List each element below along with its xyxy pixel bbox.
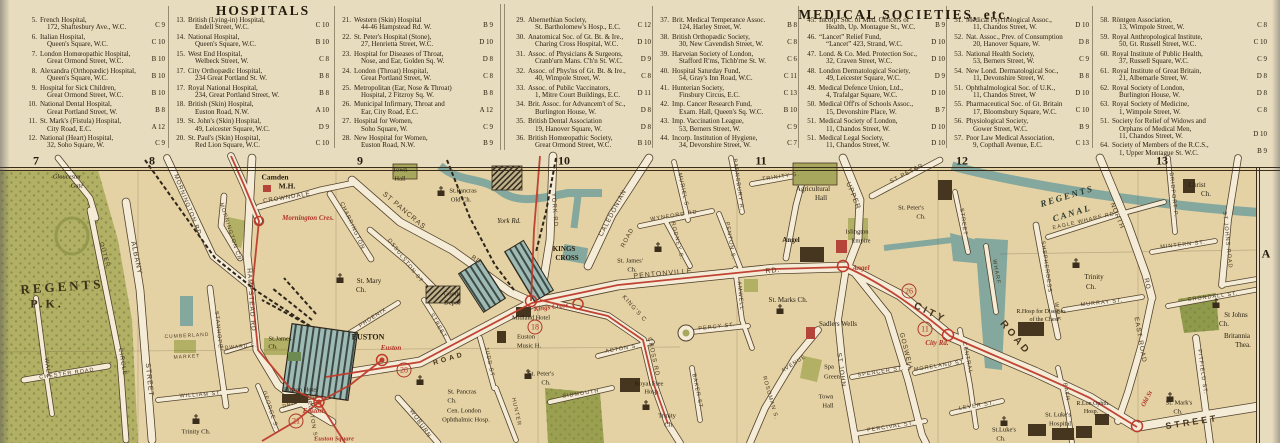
map-label: CROWNDALE <box>263 191 311 204</box>
map-label: STREET <box>144 363 154 397</box>
map-label: Britannia <box>1224 332 1250 340</box>
map-label: RD. <box>470 255 484 268</box>
grid-column-number: 12 <box>956 154 968 169</box>
map-label: Ch. <box>447 398 456 405</box>
map-label: Euston <box>381 344 402 352</box>
map-label: Sadlers Wells <box>819 320 857 328</box>
map-label: STANHOPE <box>213 311 223 349</box>
map-label: St. Peter's <box>528 371 554 378</box>
map-label: Empire <box>851 238 870 245</box>
map-label: Ophthalmic Hosp. <box>442 417 490 424</box>
map-label: Ch. <box>664 422 673 429</box>
map-label: HUNTER <box>510 397 522 427</box>
map-label: WOBURN <box>408 409 432 440</box>
map-label: Ch. <box>627 267 636 274</box>
map-label: Gate <box>71 183 84 190</box>
map-label: Goods <box>444 291 461 298</box>
map-label: Ch. <box>1173 409 1182 416</box>
map-label: PENTON S. <box>724 221 737 260</box>
map-label: P.K. <box>30 297 64 312</box>
map-label: STREET <box>428 313 447 340</box>
map-label: TRINITY S. <box>762 171 800 182</box>
map-label: CHARRINGTON <box>338 201 365 251</box>
map-label: CROSS <box>555 254 578 262</box>
map-label: EAST ROAD <box>1133 317 1148 364</box>
map-label: CALEDONIAN <box>598 188 629 237</box>
map-labels-layer: GloucesterGateREGENTSP.K.WALKCHESTER ROA… <box>0 0 1280 443</box>
map-label: St.Luke's <box>992 427 1016 434</box>
map-label: SIDMOUTH <box>562 388 600 400</box>
map-label: RD. <box>765 267 781 275</box>
map-label: Ch. <box>996 436 1005 443</box>
map-label: ALBANY <box>129 241 143 275</box>
map-label: Ch. <box>1219 320 1229 328</box>
map-label: CENTRAL <box>961 341 974 374</box>
map-label: St Johns <box>1224 311 1248 319</box>
map-label: STREET <box>958 208 968 236</box>
map-label: CRONDALL ST. <box>1187 291 1239 303</box>
map-label: UPPER <box>844 181 861 211</box>
map-ref-marker: 11 <box>918 322 933 337</box>
map-label: St. Mark's <box>1166 400 1192 407</box>
grid-column-number: 13 <box>1156 154 1168 169</box>
map-label: R.Hosp for Diseases <box>1016 309 1065 315</box>
map-label: Royal Free <box>635 381 664 388</box>
map-label: Town <box>393 167 408 174</box>
map-label: AVENUE <box>781 354 808 374</box>
map-label: RO <box>1143 278 1152 291</box>
map-label: PENTONVILLE <box>633 268 693 280</box>
map-label: KING'S C <box>620 294 647 323</box>
map-label: St. James' <box>617 258 643 265</box>
map-label: Ch. <box>916 214 925 221</box>
map-label: PERCIVAL ST. <box>867 420 915 433</box>
map-label: Depot <box>444 300 460 307</box>
map-label: EUSTON <box>352 333 385 342</box>
map-label: PHOENIX <box>358 307 388 329</box>
map-label: ROSOMAN S. <box>761 375 779 420</box>
map-label: Euston <box>303 407 324 415</box>
map-label: Hall <box>822 403 833 410</box>
map-label: Spa <box>824 364 834 371</box>
map-label: R.Lon.Ophth. <box>1076 401 1109 407</box>
map-label: PERCY ST. <box>698 322 736 332</box>
map-label: ROAD <box>997 319 1032 358</box>
map-label: RODNEY S. <box>669 221 684 260</box>
map-label: York Rd. <box>497 217 521 225</box>
map-label: ROAD <box>620 227 635 249</box>
map-label: BARNSBURY R. <box>731 158 744 211</box>
grid-row-letter: A <box>1262 247 1271 262</box>
map-label: St.Pancras <box>449 188 476 195</box>
map-label: CUMBERLAND <box>164 332 209 340</box>
map-ref-marker: 28 <box>397 363 412 378</box>
map-label: M.H. <box>279 182 296 191</box>
map-label: ROAD <box>432 351 465 367</box>
map-label: City Rd. <box>925 339 948 347</box>
map-label: MORELAND ST. <box>914 359 967 373</box>
map-label: ACTON S. <box>605 343 639 355</box>
map-label: YORK RD <box>550 193 558 228</box>
map-label: Town <box>819 394 834 401</box>
map-label: Hospital <box>1049 421 1071 428</box>
map-label: Euston <box>517 334 535 341</box>
map-label: MARKET <box>173 353 200 360</box>
map-label: HAMPSTEAD RD <box>245 268 256 332</box>
map-label: CITY <box>912 300 948 325</box>
vintage-london-medical-map: HOSPITALS MEDICAL SOCIETIES, etc. 5.Fren… <box>0 0 1280 443</box>
map-label: BAKER ST <box>690 373 703 409</box>
map-label: SPENCER ST. <box>857 365 904 378</box>
map-label: Agricultural <box>796 185 830 193</box>
map-label: WILLIAM ST. <box>179 391 222 400</box>
map-label: St. Luke's <box>1045 412 1071 419</box>
map-label: Mornington Cres. <box>282 214 334 222</box>
map-label: CIRCLE <box>117 348 128 377</box>
map-label: ST PANCRAS <box>381 191 427 231</box>
grid-column-number: 10 <box>558 154 570 169</box>
map-label: Kings Cross <box>533 301 569 313</box>
map-label: St. Mary <box>357 277 382 285</box>
map-label: ST JOHNS ROAD <box>1221 211 1233 269</box>
map-label: Hall <box>394 176 405 183</box>
map-label: Hosp. <box>1084 409 1098 415</box>
map-label: Angel <box>782 236 800 244</box>
map-label: Camden <box>261 173 288 182</box>
map-label: Trinity Ch. <box>182 429 211 436</box>
map-label: Angel <box>852 264 869 272</box>
map-label: Old Ch. <box>451 197 472 204</box>
map-label: Trinity <box>1084 273 1103 281</box>
map-label: ST JOHN <box>835 352 847 387</box>
map-label: Euston Square <box>314 436 354 443</box>
map-ref-marker: 18 <box>528 320 543 335</box>
map-label: OSSULSTON ST <box>386 238 424 285</box>
map-label: PITFIELD ST. <box>1196 349 1208 395</box>
map-label: of the Chest <box>1030 317 1059 323</box>
map-label: Euston Hotel <box>284 387 318 394</box>
map-label: BRIDPORT P. <box>1168 172 1179 218</box>
map-label: Hosp. <box>644 389 659 396</box>
map-label: JUDD ST <box>483 347 495 378</box>
map-ref-marker: 21 <box>289 414 304 429</box>
map-label: WHARF <box>991 259 1001 285</box>
map-label: MORNINGTON CR <box>218 202 242 261</box>
map-label: MURRAY ST. <box>1080 298 1123 308</box>
map-label: GEORGE S. <box>261 390 279 430</box>
map-label: Ch. <box>1201 190 1211 198</box>
map-label: CROSS RD <box>646 337 660 377</box>
map-label: Music H. <box>517 343 541 350</box>
map-label: Cen. London <box>447 408 481 415</box>
map-label: BATH <box>1061 382 1070 401</box>
grid-column-number: 8 <box>149 154 155 169</box>
map-label: Ch. <box>356 286 366 294</box>
grid-column-number: 11 <box>755 154 766 169</box>
map-label: St. Peter's <box>898 205 924 212</box>
map-label: Thea. <box>1235 341 1251 349</box>
grid-column-number: 9 <box>357 154 363 169</box>
map-label: STREET <box>1165 413 1219 431</box>
map-label: REGENTS <box>20 276 104 298</box>
map-label: St.James <box>269 336 292 343</box>
map-label: OUTER <box>98 242 111 269</box>
map-label: SHEPHERDESS <box>1039 241 1052 294</box>
grid-column-number: 7 <box>33 154 39 169</box>
map-label: AMWELL <box>735 281 744 311</box>
map-label: St. Marks Ch. <box>769 296 808 304</box>
map-label: St. Pancras <box>448 389 477 396</box>
map-label: Trinity <box>658 413 676 420</box>
map-label: LEVER ST. <box>958 400 995 412</box>
map-ref-marker: 26 <box>902 284 917 299</box>
map-label: Ch. <box>541 380 550 387</box>
map-label: Hall <box>815 194 827 202</box>
map-label: MINTERN ST. <box>1160 240 1206 251</box>
map-label: Old St <box>1140 390 1154 408</box>
map-label: MURIEL S. <box>676 173 689 210</box>
map-label: Christ <box>1188 181 1205 189</box>
map-label: Islington <box>845 229 868 236</box>
map-label: KINGS <box>553 245 576 253</box>
map-label: ST PETER <box>889 163 925 185</box>
map-label: Ch. <box>268 344 277 351</box>
map-label: Ch. <box>1086 283 1096 291</box>
map-label: Gloucester <box>53 174 82 181</box>
map-label: MORNINGTON RD <box>172 174 202 236</box>
map-label: EDWARD S. <box>220 342 258 351</box>
